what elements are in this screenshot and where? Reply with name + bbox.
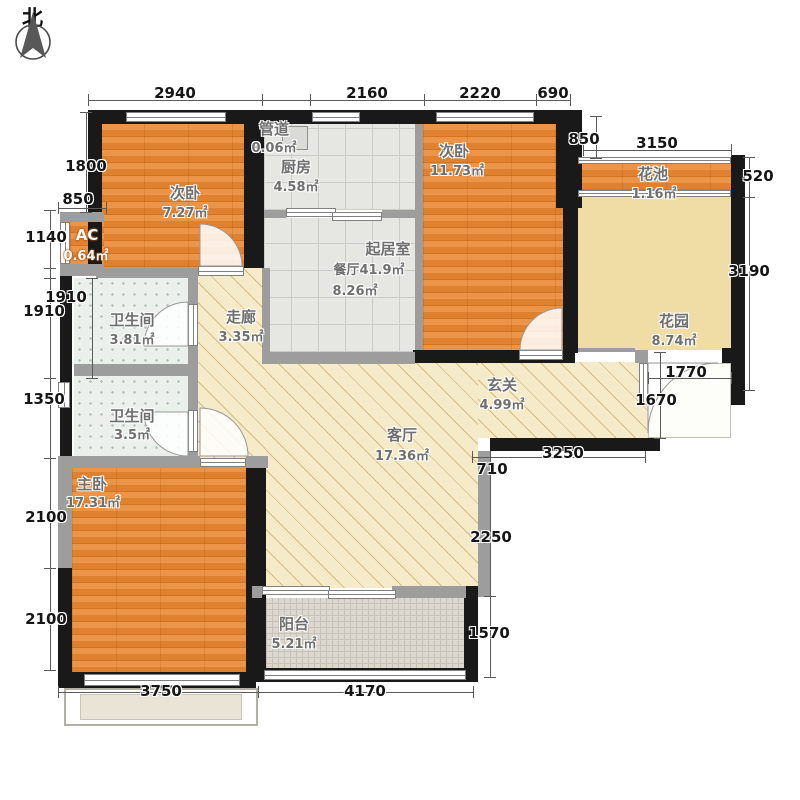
dim-tick (258, 686, 259, 698)
wall (731, 155, 745, 405)
door-leaf (198, 266, 244, 276)
north-label: 北 (22, 2, 43, 32)
wall (262, 352, 415, 364)
wall (188, 278, 198, 304)
dim-right-3150: 3150 (632, 134, 682, 152)
door-leaf (188, 304, 198, 346)
wall (392, 586, 466, 598)
dim-tick (743, 157, 755, 158)
dim-line (92, 278, 93, 378)
window (126, 112, 226, 122)
corridor-area: 3.35㎡ (212, 326, 270, 345)
dim-tick (86, 378, 98, 379)
dim-left-1350: 1350 (22, 390, 66, 408)
livingroom-area: 8.26㎡ (322, 280, 388, 299)
wall (246, 456, 268, 468)
dim-tick (44, 568, 56, 569)
sliding-door (262, 586, 330, 595)
wall (563, 208, 578, 353)
dim-tick (484, 457, 496, 458)
bath1-area: 3.81㎡ (103, 329, 161, 348)
duct-area: 0.06㎡ (244, 137, 304, 156)
dim-tick (424, 94, 425, 106)
window (312, 112, 360, 122)
dim-tick (654, 438, 666, 439)
dim-left-2100a: 2100 (24, 508, 68, 526)
dim-tick (86, 278, 98, 279)
foyer-label: 玄关 (473, 374, 531, 395)
dim-left-1800: 1800 (64, 157, 108, 175)
corridor-floor (196, 268, 266, 458)
dim-tick (648, 372, 649, 384)
wall (382, 210, 415, 218)
dim-top-2220: 2220 (455, 84, 505, 102)
balcony-label: 阳台 (266, 613, 322, 634)
garden-area: 8.74㎡ (645, 330, 703, 349)
flowerbed-area: 1.16㎡ (624, 183, 684, 202)
dim-tick (310, 94, 311, 106)
dim-left-850: 850 (58, 190, 98, 208)
dim-right-1570: 1570 (466, 624, 512, 642)
sliding-door (328, 590, 396, 599)
dim-left-2100b: 2100 (24, 610, 68, 628)
dim-tick (44, 378, 56, 379)
duct-label: 管道 (246, 118, 302, 139)
dim-left-1140: 1140 (24, 228, 68, 246)
kitchen-area: 4.58㎡ (262, 176, 330, 195)
ac-label: AC (70, 226, 104, 244)
dim-tick (731, 144, 732, 156)
dim-tick (106, 202, 107, 214)
dim-tick (58, 686, 59, 698)
dim-tick (44, 278, 56, 279)
door-leaf (200, 458, 246, 467)
window (436, 112, 534, 122)
dim-bottom-4170: 4170 (340, 682, 390, 700)
wall (60, 212, 104, 222)
wall (635, 350, 648, 363)
dim-tick (590, 116, 602, 117)
flowerbed-label: 花池 (627, 163, 679, 184)
bedroom1-label: 次卧 (155, 182, 215, 203)
dim-tick (44, 458, 56, 459)
dim-line (58, 692, 473, 693)
living-area: 17.36㎡ (367, 445, 437, 464)
dim-tick (80, 212, 92, 213)
master-area: 17.31㎡ (58, 492, 128, 511)
dim-right-710: 710 (472, 460, 512, 478)
bath1-label: 卫生间 (101, 309, 163, 330)
ac-area: 0.64㎡ (62, 245, 110, 264)
dim-line (50, 210, 51, 670)
dim-line (58, 208, 106, 209)
dim-bottom-3750: 3750 (136, 682, 186, 700)
dim-tick (44, 268, 56, 269)
bath2-area: 3.5㎡ (109, 424, 155, 443)
dim-tick (88, 94, 89, 106)
master-label: 主卧 (64, 473, 120, 494)
wall (578, 348, 635, 352)
corridor-label: 走廊 (211, 306, 271, 327)
dim-top-690: 690 (533, 84, 573, 102)
livingroom-line2: 餐厅41.9㎡ (326, 259, 412, 278)
wall (722, 348, 731, 363)
dim-line (490, 457, 491, 677)
dim-tick (731, 372, 732, 384)
dim-right-3190: 3190 (724, 262, 774, 280)
wall (252, 586, 262, 598)
dim-left-1910b: 1910 (22, 302, 66, 320)
wall (188, 346, 198, 410)
floor-plan: 北 (0, 0, 800, 800)
door-leaf (188, 410, 198, 452)
dim-right-850: 850 (564, 130, 604, 148)
dim-tick (80, 112, 92, 113)
dim-right-3250: 3250 (538, 444, 588, 462)
dim-right-520: 520 (738, 167, 778, 185)
dim-tick (590, 158, 602, 159)
dim-tick (743, 390, 755, 391)
dim-right-2250: 2250 (468, 528, 514, 546)
bedroom2-label: 次卧 (424, 140, 484, 161)
window (264, 670, 466, 680)
dim-right-1670: 1670 (632, 391, 680, 409)
wall (415, 124, 423, 350)
bath2-label: 卫生间 (101, 405, 163, 426)
dim-right-1770: 1770 (662, 363, 710, 381)
wall (96, 268, 198, 278)
dim-tick (743, 197, 755, 198)
dim-tick (473, 686, 474, 698)
balcony-area: 5.21㎡ (264, 633, 324, 652)
dim-tick (645, 451, 646, 463)
sliding-door (286, 208, 336, 217)
foyer-area: 4.99㎡ (471, 394, 533, 413)
dim-tick (44, 210, 56, 211)
garden-label: 花园 (648, 310, 700, 331)
dim-top-2940: 2940 (150, 84, 200, 102)
wall (246, 456, 266, 680)
door-leaf (519, 350, 563, 360)
sliding-door (332, 212, 382, 221)
living-label: 客厅 (372, 424, 432, 445)
bedroom1-area: 7.27㎡ (153, 202, 217, 221)
dim-tick (44, 670, 56, 671)
livingroom-label: 起居室 (350, 238, 426, 259)
dim-tick (484, 596, 496, 597)
dim-top-2160: 2160 (342, 84, 392, 102)
dim-tick (262, 94, 263, 106)
wall (264, 210, 286, 218)
bedroom2-area: 11.73㎡ (422, 160, 492, 179)
dim-tick (654, 352, 666, 353)
dim-tick (484, 677, 496, 678)
kitchen-label: 厨房 (264, 156, 328, 177)
wall (60, 456, 200, 468)
living-floor (266, 362, 478, 588)
